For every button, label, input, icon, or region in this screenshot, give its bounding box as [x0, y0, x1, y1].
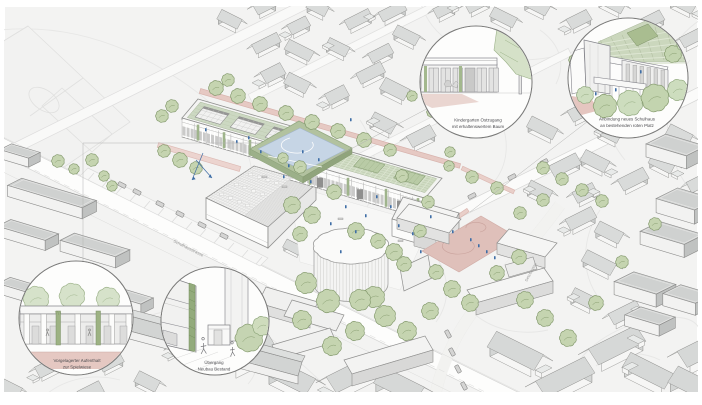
svg-text:mit erhaltenswertem Baum: mit erhaltenswertem Baum — [452, 124, 505, 129]
svg-text:Neubau Bestand: Neubau Bestand — [198, 367, 231, 372]
svg-text:zur Spielwiese: zur Spielwiese — [63, 365, 92, 370]
svg-text:Übergang: Übergang — [204, 360, 224, 365]
svg-text:an bestehenden roten Platz: an bestehenden roten Platz — [600, 123, 654, 128]
svg-text:Vorgelagerter Aufenthalt: Vorgelagerter Aufenthalt — [53, 358, 101, 363]
svg-text:Anbindung neues Schulhaus: Anbindung neues Schulhaus — [599, 117, 656, 122]
svg-text:Kindergarten Ostzugang: Kindergarten Ostzugang — [454, 118, 502, 123]
